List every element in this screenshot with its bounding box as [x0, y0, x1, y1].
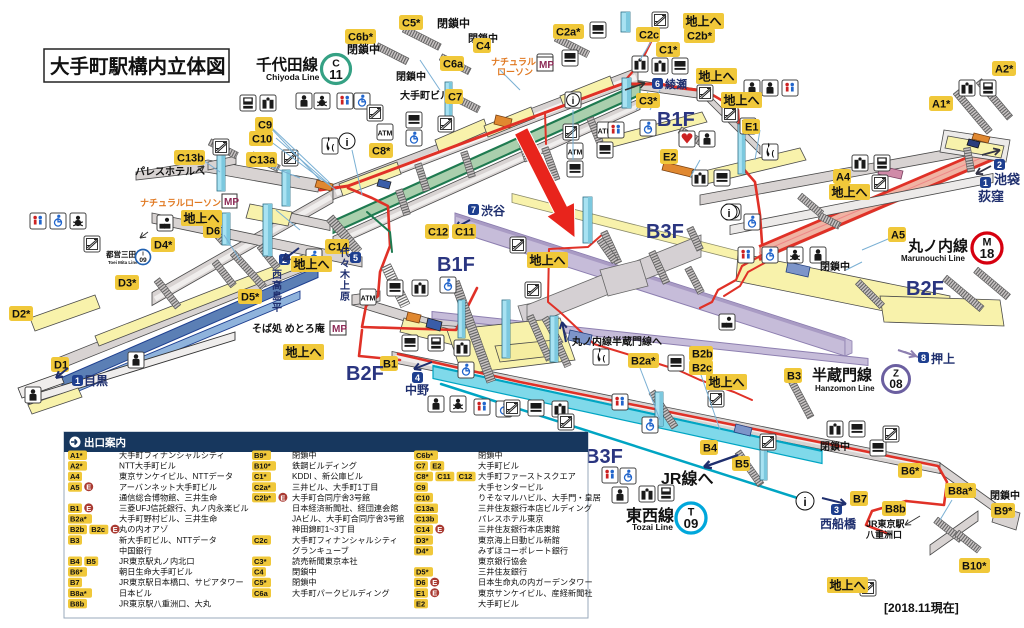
svg-text:目黒: 目黒: [84, 374, 108, 388]
svg-text:ATM: ATM: [568, 150, 583, 157]
svg-text:C7: C7: [448, 92, 462, 104]
svg-text:JAビル、大手町合同庁舎3号館: JAビル、大手町合同庁舎3号館: [292, 514, 404, 524]
svg-text:C2a*: C2a*: [556, 27, 581, 39]
svg-text:地上へ: 地上へ: [686, 14, 722, 29]
svg-text:C13a: C13a: [416, 504, 435, 513]
svg-text:8: 8: [921, 353, 926, 363]
svg-text:E1: E1: [745, 122, 758, 134]
svg-text:NTT大手町ビル: NTT大手町ビル: [119, 461, 176, 471]
svg-text:JR東京駅丸ノ内北口: JR東京駅丸ノ内北口: [119, 556, 195, 566]
svg-text:B10*: B10*: [254, 462, 271, 471]
svg-text:B2b: B2b: [692, 349, 713, 361]
svg-text:JR線へ: JR線へ: [661, 469, 713, 488]
svg-text:パレスホテル東京: パレスホテル東京: [478, 514, 544, 524]
svg-text:B5: B5: [86, 557, 96, 566]
svg-text:C8*: C8*: [416, 472, 429, 481]
svg-text:大手町ファーストスクエア: 大手町ファーストスクエア: [478, 471, 576, 481]
svg-text:西船橋: 西船橋: [820, 516, 857, 531]
svg-text:MP: MP: [332, 324, 347, 335]
svg-text:地上へ: 地上へ: [832, 185, 868, 200]
svg-text:閉鎖中: 閉鎖中: [396, 70, 426, 83]
svg-text:閉鎖中: 閉鎖中: [990, 489, 1020, 502]
svg-text:A4: A4: [70, 472, 80, 481]
svg-text:D6: D6: [206, 226, 220, 238]
svg-text:JR東京駅日本橋口、サピアタワー: JR東京駅日本橋口、サピアタワー: [119, 577, 244, 587]
svg-text:E: E: [432, 578, 437, 587]
svg-text:ATM: ATM: [361, 296, 376, 303]
svg-text:朝日生命大手町ビル: 朝日生命大手町ビル: [119, 567, 193, 577]
svg-text:1: 1: [983, 178, 988, 188]
svg-text:C7: C7: [416, 462, 426, 471]
svg-text:Chiyoda Line: Chiyoda Line: [266, 72, 320, 82]
svg-text:(: (: [332, 143, 335, 152]
svg-text:C10: C10: [252, 134, 272, 146]
svg-text:半蔵門線: 半蔵門線: [812, 366, 872, 384]
svg-text:D4*: D4*: [416, 546, 429, 555]
svg-text:D5*: D5*: [241, 292, 260, 304]
svg-text:地上へ: 地上へ: [724, 93, 760, 108]
svg-text:C8*: C8*: [372, 146, 391, 158]
svg-text:C10: C10: [416, 493, 430, 502]
svg-text:通信総合博物館、三井生命: 通信総合博物館、三井生命: [119, 492, 217, 502]
svg-text:地上へ: 地上へ: [699, 69, 735, 84]
svg-text:中国銀行: 中国銀行: [119, 545, 152, 555]
svg-text:6: 6: [655, 79, 660, 89]
svg-text:B10*: B10*: [962, 561, 987, 573]
svg-text:閉鎖中: 閉鎖中: [347, 42, 380, 56]
svg-text:B1F: B1F: [657, 109, 695, 131]
svg-text:1: 1: [75, 376, 80, 386]
svg-text:09: 09: [139, 257, 147, 264]
svg-text:A1*: A1*: [70, 451, 83, 460]
svg-text:C9: C9: [416, 483, 426, 492]
svg-text:B2b: B2b: [70, 525, 85, 534]
svg-text:B1: B1: [383, 359, 397, 371]
svg-text:日本ビル: 日本ビル: [119, 588, 152, 598]
svg-text:C9: C9: [258, 120, 272, 132]
svg-text:東京銀行協会: 東京銀行協会: [478, 556, 527, 566]
svg-text:ナチュラルローソン: ナチュラルローソン: [140, 198, 221, 208]
svg-text:C6b*: C6b*: [416, 451, 433, 460]
svg-text:D3*: D3*: [118, 278, 137, 290]
svg-text:島: 島: [272, 290, 282, 303]
svg-text:神田錦町1~3丁目: 神田錦町1~3丁目: [292, 524, 355, 534]
svg-text:C6a: C6a: [254, 589, 269, 598]
svg-text:グランキューブ: グランキューブ: [292, 545, 349, 555]
svg-text:4: 4: [415, 373, 420, 383]
svg-text:三井住友銀行: 三井住友銀行: [478, 567, 527, 577]
svg-text:C2c: C2c: [254, 536, 268, 545]
svg-text:Hanzomon Line: Hanzomon Line: [815, 384, 875, 393]
svg-text:りそなマルハビル、大手門・皇居: りそなマルハビル、大手門・皇居: [478, 492, 601, 502]
svg-text:地上へ: 地上へ: [286, 345, 322, 360]
svg-text:11: 11: [329, 67, 342, 82]
svg-text:大手町フィナンシャルシティ: 大手町フィナンシャルシティ: [292, 535, 398, 545]
svg-text:ATM: ATM: [378, 131, 393, 138]
svg-text:C4: C4: [476, 41, 491, 53]
svg-text:KDDI 、新公庫ビル: KDDI 、新公庫ビル: [292, 471, 363, 481]
svg-text:C4: C4: [254, 568, 264, 577]
svg-text:閉鎖中: 閉鎖中: [437, 16, 470, 30]
svg-text:地上へ: 地上へ: [830, 578, 866, 593]
svg-text:18: 18: [980, 246, 995, 261]
svg-text:東京サンケイビル、NTTデータ: 東京サンケイビル、NTTデータ: [119, 471, 233, 481]
svg-text:C12: C12: [428, 227, 448, 239]
svg-text:C3*: C3*: [254, 557, 267, 566]
svg-text:大手センタービル: 大手センタービル: [478, 482, 544, 492]
svg-text:みずほコーポレート銀行: みずほコーポレート銀行: [478, 545, 568, 555]
svg-text:ナチュラル: ナチュラル: [491, 57, 536, 67]
svg-text:々: 々: [340, 258, 350, 270]
svg-text:D5*: D5*: [416, 568, 429, 577]
svg-text:出口案内: 出口案内: [84, 436, 126, 449]
svg-text:(: (: [772, 149, 775, 158]
svg-text:地上へ: 地上へ: [530, 253, 566, 268]
svg-text:高: 高: [272, 279, 282, 292]
svg-text:Toei Mita Line: Toei Mita Line: [108, 260, 138, 265]
svg-text:D4*: D4*: [154, 240, 173, 252]
svg-text:E2: E2: [416, 599, 425, 608]
svg-text:[2018.11現在]: [2018.11現在]: [884, 600, 959, 615]
svg-text:E: E: [86, 483, 91, 492]
svg-text:3: 3: [834, 505, 839, 515]
svg-text:B9*: B9*: [254, 451, 267, 460]
svg-text:B6*: B6*: [901, 466, 920, 478]
svg-text:閉鎖中: 閉鎖中: [478, 450, 503, 460]
svg-text:木: 木: [339, 268, 351, 281]
svg-text:八重洲口: 八重洲口: [865, 529, 902, 540]
svg-text:C1*: C1*: [659, 45, 678, 57]
svg-text:三井住友銀行本店東館: 三井住友銀行本店東館: [478, 524, 560, 534]
svg-text:5: 5: [353, 253, 358, 263]
svg-text:A2*: A2*: [70, 462, 83, 471]
svg-text:Marunouchi Line: Marunouchi Line: [901, 254, 966, 263]
svg-text:C11: C11: [437, 472, 450, 481]
svg-text:地上へ: 地上へ: [294, 257, 330, 272]
svg-text:B3F: B3F: [646, 221, 684, 243]
svg-text:アーバンネット大手町ビル: アーバンネット大手町ビル: [119, 482, 217, 492]
svg-text:C3*: C3*: [639, 96, 658, 108]
svg-text:三菱UFJ信託銀行、丸ノ内永楽ビル: 三菱UFJ信託銀行、丸ノ内永楽ビル: [119, 503, 249, 513]
svg-text:E: E: [432, 589, 437, 598]
svg-text:大手町パークビルディング: 大手町パークビルディング: [292, 588, 390, 598]
svg-text:i: i: [572, 96, 575, 107]
svg-text:i: i: [345, 137, 348, 149]
svg-text:B8b: B8b: [885, 504, 906, 516]
svg-text:2: 2: [997, 160, 1002, 170]
svg-text:C13b: C13b: [177, 153, 204, 165]
svg-text:B2a*: B2a*: [70, 515, 87, 524]
svg-text:B3F: B3F: [585, 446, 623, 468]
svg-text:B2F: B2F: [906, 278, 944, 300]
svg-text:B1: B1: [70, 504, 80, 513]
svg-text:7: 7: [471, 205, 476, 215]
svg-text:B2F: B2F: [346, 363, 384, 385]
svg-text:そば処 めとろ庵: そば処 めとろ庵: [252, 322, 326, 335]
svg-text:B8a*: B8a*: [948, 486, 973, 498]
svg-text:C2b*: C2b*: [687, 31, 713, 43]
svg-text:B9*: B9*: [994, 506, 1013, 518]
svg-text:E: E: [113, 525, 118, 534]
svg-text:大手町ビル: 大手町ビル: [478, 461, 519, 471]
svg-text:ローソン: ローソン: [497, 67, 533, 77]
svg-text:C13a: C13a: [249, 155, 276, 167]
svg-text:丸の内オアゾ: 丸の内オアゾ: [119, 524, 168, 534]
svg-text:パレスホテルへ: パレスホテルへ: [135, 166, 205, 178]
svg-text:丸ノ内線: 丸ノ内線: [907, 237, 968, 255]
svg-text:綾瀬: 綾瀬: [665, 77, 687, 91]
svg-text:閉鎖中: 閉鎖中: [292, 577, 317, 587]
svg-text:鉄鋼ビルディング: 鉄鋼ビルディング: [292, 461, 357, 471]
svg-text:西: 西: [272, 269, 282, 281]
svg-text:B8b: B8b: [70, 599, 85, 608]
svg-text:D6: D6: [416, 578, 426, 587]
svg-text:閉鎖中: 閉鎖中: [292, 567, 317, 577]
svg-text:読売新聞東京本社: 読売新聞東京本社: [292, 556, 358, 566]
svg-text:B3: B3: [70, 536, 80, 545]
svg-text:代: 代: [339, 246, 350, 259]
svg-text:平: 平: [272, 302, 282, 314]
svg-text:B6*: B6*: [70, 568, 83, 577]
svg-text:MP: MP: [539, 60, 554, 71]
svg-text:C11: C11: [455, 227, 475, 239]
svg-text:B4: B4: [703, 443, 718, 455]
svg-text:D3*: D3*: [416, 536, 429, 545]
svg-text:渋谷: 渋谷: [481, 203, 506, 218]
svg-text:閉鎖中: 閉鎖中: [820, 260, 850, 273]
svg-text:E: E: [86, 504, 91, 513]
svg-text:Tozai Line: Tozai Line: [632, 522, 673, 532]
svg-text:E2: E2: [432, 462, 441, 471]
svg-text:C6a: C6a: [443, 59, 464, 71]
svg-text:B8a*: B8a*: [70, 589, 87, 598]
svg-text:地上へ: 地上へ: [709, 375, 745, 390]
svg-text:東京海上日動ビル新館: 東京海上日動ビル新館: [478, 535, 560, 545]
svg-text:閉鎖中: 閉鎖中: [292, 450, 317, 460]
svg-text:B2a*: B2a*: [631, 356, 656, 368]
svg-text:B7: B7: [70, 578, 80, 587]
svg-text:B4: B4: [70, 557, 80, 566]
svg-text:(: (: [603, 354, 606, 363]
svg-text:閉鎖中: 閉鎖中: [820, 440, 850, 453]
svg-text:東京サンケイビル、産経新聞社: 東京サンケイビル、産経新聞社: [478, 588, 592, 598]
svg-text:E1: E1: [416, 589, 425, 598]
svg-text:B5: B5: [735, 459, 749, 471]
svg-text:大手町野村ビル、三井生命: 大手町野村ビル、三井生命: [119, 514, 217, 524]
svg-text:中野: 中野: [405, 382, 429, 397]
svg-text:A1*: A1*: [932, 99, 951, 111]
svg-text:大手町ビル: 大手町ビル: [478, 598, 519, 608]
svg-text:大手町駅構内立体図: 大手町駅構内立体図: [50, 55, 226, 78]
svg-text:大手町合同庁舎3号館: 大手町合同庁舎3号館: [292, 492, 370, 502]
svg-text:E: E: [280, 493, 285, 502]
svg-text:C5*: C5*: [402, 18, 421, 30]
svg-text:押上: 押上: [931, 351, 955, 366]
svg-text:C2a*: C2a*: [254, 483, 271, 492]
svg-text:C5*: C5*: [254, 578, 267, 587]
svg-text:池袋: 池袋: [994, 172, 1021, 187]
svg-text:日本生命丸の内ガーデンタワー: 日本生命丸の内ガーデンタワー: [478, 577, 593, 587]
svg-text:A5: A5: [70, 483, 80, 492]
svg-text:C13b: C13b: [416, 515, 435, 524]
svg-text:C1*: C1*: [254, 472, 267, 481]
svg-text:新大手町ビル、NTTデータ: 新大手町ビル、NTTデータ: [119, 535, 217, 545]
svg-text:08: 08: [889, 377, 903, 391]
svg-text:原: 原: [340, 291, 350, 303]
svg-text:B7: B7: [853, 494, 867, 506]
svg-text:日本経済新聞社、経団連会館: 日本経済新聞社、経団連会館: [292, 503, 398, 513]
svg-text:i: i: [727, 208, 730, 220]
svg-text:E2: E2: [663, 152, 676, 164]
svg-text:荻窪: 荻窪: [978, 189, 1004, 204]
svg-text:C14: C14: [416, 525, 431, 534]
svg-text:i: i: [803, 495, 806, 509]
svg-text:JR東京駅八重洲口、大丸: JR東京駅八重洲口、大丸: [119, 598, 212, 608]
svg-text:B2c: B2c: [692, 363, 712, 375]
svg-text:B2c: B2c: [91, 525, 105, 534]
svg-text:三井ビル、大手町1丁目: 三井ビル、大手町1丁目: [292, 482, 378, 492]
svg-text:MP: MP: [224, 197, 239, 208]
svg-text:大手町フィナンシャルシティ: 大手町フィナンシャルシティ: [119, 450, 225, 460]
svg-text:A2*: A2*: [995, 64, 1014, 76]
svg-text:大手町ビル: 大手町ビル: [400, 89, 450, 102]
svg-text:上: 上: [340, 279, 350, 292]
svg-text:A5: A5: [891, 230, 905, 242]
svg-text:D2*: D2*: [12, 309, 31, 321]
svg-text:C2c: C2c: [639, 30, 659, 42]
svg-text:B1F: B1F: [437, 254, 475, 276]
svg-text:C6b*: C6b*: [348, 32, 374, 44]
svg-text:A4: A4: [836, 172, 851, 184]
svg-text:B3: B3: [787, 371, 801, 383]
svg-text:C12: C12: [459, 472, 473, 481]
svg-text:JR東京駅: JR東京駅: [866, 518, 906, 529]
svg-text:E: E: [437, 525, 442, 534]
svg-text:丸ノ内線半蔵門線へ: 丸ノ内線半蔵門線へ: [571, 335, 662, 348]
svg-text:三井住友銀行本店ビルディング: 三井住友銀行本店ビルディング: [478, 503, 592, 513]
svg-text:09: 09: [684, 516, 699, 531]
svg-text:C2b*: C2b*: [254, 493, 271, 502]
